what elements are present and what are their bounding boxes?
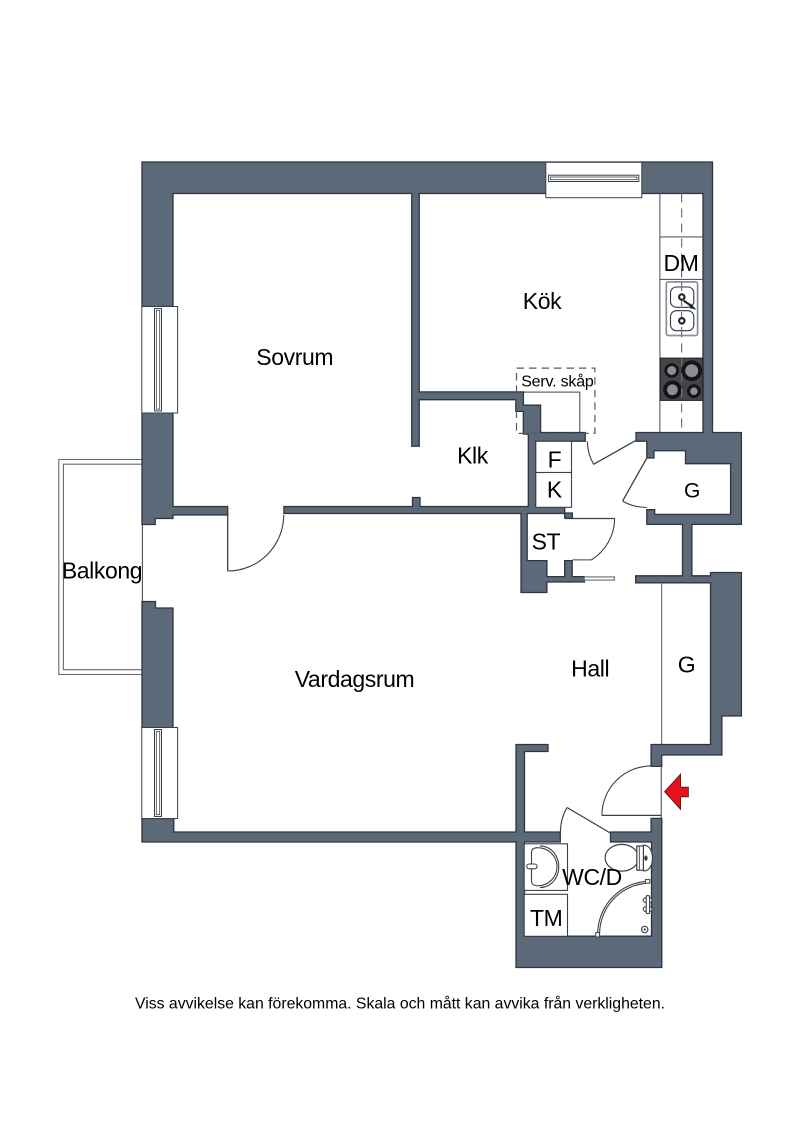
svg-text:Viss avvikelse kan förekomma.: Viss avvikelse kan förekomma. Skala och … bbox=[135, 995, 665, 1013]
svg-text:Serv. skåp: Serv. skåp bbox=[521, 373, 594, 391]
svg-text:G: G bbox=[684, 480, 700, 503]
svg-text:ST: ST bbox=[532, 528, 561, 554]
svg-text:G: G bbox=[678, 651, 696, 677]
svg-text:F: F bbox=[548, 447, 562, 473]
svg-text:DM: DM bbox=[664, 250, 699, 276]
svg-text:Balkong: Balkong bbox=[62, 558, 142, 584]
svg-text:K: K bbox=[547, 477, 563, 503]
svg-text:Klk: Klk bbox=[457, 443, 489, 469]
svg-text:Vardagsrum: Vardagsrum bbox=[295, 666, 415, 692]
svg-text:Kök: Kök bbox=[523, 288, 562, 314]
svg-text:WC/D: WC/D bbox=[562, 864, 622, 890]
svg-text:TM: TM bbox=[530, 905, 562, 931]
svg-text:Sovrum: Sovrum bbox=[256, 344, 333, 370]
svg-text:Hall: Hall bbox=[571, 656, 609, 682]
